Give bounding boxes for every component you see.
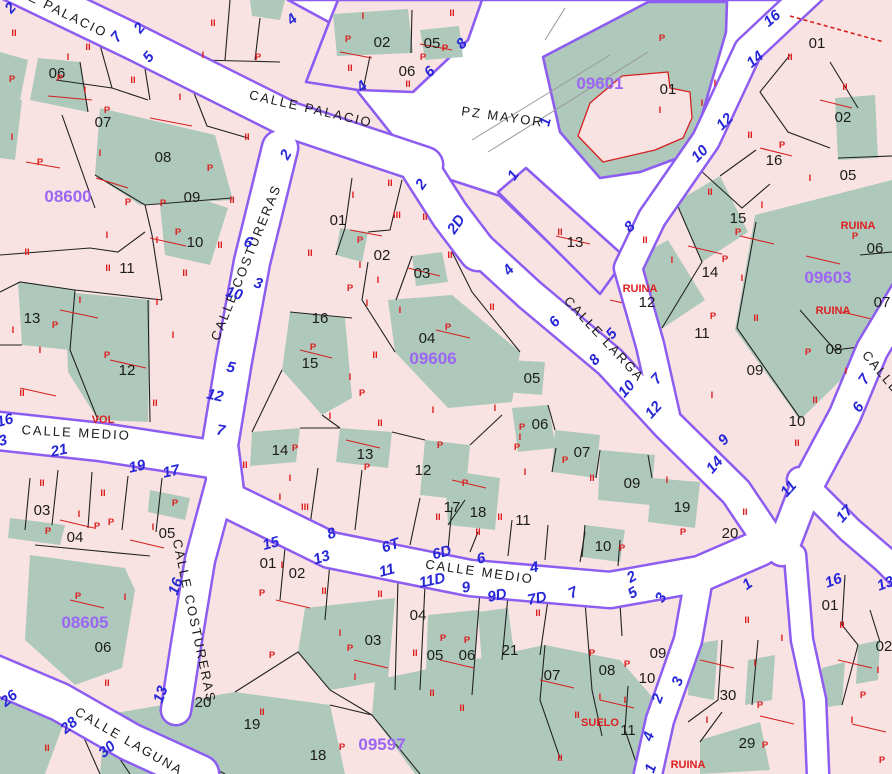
parcel-number: 05 [424, 35, 441, 52]
floors-marker: II [412, 648, 417, 659]
parcel-number: 20 [722, 525, 739, 542]
floors-marker: II [475, 527, 480, 538]
parking-marker: P [37, 157, 44, 168]
floors-marker: II [11, 28, 16, 39]
parcel-number: 04 [410, 607, 427, 624]
floors-marker: II [19, 388, 24, 399]
floors-marker: II [557, 753, 562, 764]
parking-marker: P [45, 526, 52, 537]
floors-marker: II [104, 678, 109, 689]
cadastral-map[interactable]: CALLE PALACIOCALLE PALACIOPZ MAYORCALLE … [0, 0, 892, 774]
floors-marker: I [172, 330, 175, 341]
parking-marker: P [75, 591, 82, 602]
parcel-number: 12 [119, 362, 136, 379]
parcel-number: 05 [427, 647, 444, 664]
floors-marker: I [519, 432, 522, 443]
parcel-number: 10 [187, 234, 204, 251]
parcel-number: 13 [24, 310, 41, 327]
parking-marker: P [757, 700, 764, 711]
parcel-number: 11 [620, 722, 636, 739]
floors-marker: III [393, 210, 401, 221]
parcel-number: 07 [544, 667, 561, 684]
parcel-number: 07 [574, 444, 591, 461]
parcel-number: 11 [515, 512, 531, 529]
parking-marker: P [357, 235, 364, 246]
floors-marker: II [707, 187, 712, 198]
parcel-number: 05 [159, 525, 176, 542]
parking-marker: P [519, 422, 526, 433]
floors-marker: II [642, 235, 647, 246]
floors-marker: II [229, 195, 234, 206]
floors-marker: I [179, 92, 182, 103]
block-code: 08600 [44, 187, 91, 206]
parcel-number: 30 [720, 687, 737, 704]
parking-marker: P [104, 350, 111, 361]
floors-marker: II [489, 302, 494, 313]
parcel-number: 09 [184, 189, 201, 206]
parking-marker: P [207, 163, 214, 174]
floors-marker: II [449, 8, 454, 19]
floors-marker: I [352, 190, 355, 201]
floors-marker: I [349, 372, 352, 383]
floors-marker: II [244, 132, 249, 143]
parking-marker: P [255, 52, 262, 63]
parking-marker: P [347, 643, 354, 654]
parking-marker: P [175, 227, 182, 238]
parcel-number: 06 [867, 240, 884, 257]
floors-marker: I [809, 173, 812, 184]
floors-marker: I [39, 345, 42, 356]
floors-marker: II [321, 586, 326, 597]
parcel-number: 21 [502, 642, 519, 659]
floors-marker: I [124, 592, 127, 603]
parking-marker: P [347, 283, 354, 294]
parcel-number: 06 [459, 647, 476, 664]
parking-marker: P [160, 198, 167, 209]
parcel-number: 05 [840, 167, 857, 184]
special-status-label: RUINA [623, 283, 658, 295]
floors-marker: I [701, 98, 704, 109]
special-status-label: VOL [92, 414, 115, 426]
block-code: 09603 [804, 268, 851, 287]
floors-marker: I [671, 255, 674, 266]
parcel-number: 06 [532, 416, 549, 433]
parcel-number: 16 [766, 152, 783, 169]
parking-marker: P [108, 517, 115, 528]
parcel-number: 08 [599, 662, 616, 679]
parcel-number: 04 [67, 529, 84, 546]
parcel-number: 07 [95, 114, 112, 131]
floors-marker: I [366, 298, 369, 309]
floors-marker: II [589, 473, 594, 484]
parcel-number: 09 [624, 475, 641, 492]
floors-marker: II [377, 589, 382, 600]
parking-marker: P [172, 498, 179, 509]
floors-marker: I [12, 325, 15, 336]
parking-marker: P [269, 650, 276, 661]
floors-marker: I [851, 715, 854, 726]
parking-marker: P [735, 227, 742, 238]
floors-marker: I [741, 273, 744, 284]
parcel-number: 18 [470, 504, 487, 521]
floors-marker: II [429, 688, 434, 699]
floors-marker: II [753, 313, 758, 324]
parcel-number: 18 [310, 747, 327, 764]
floors-marker: II [497, 512, 502, 523]
block-code: 09601 [576, 74, 623, 93]
parcel-number: 13 [567, 234, 584, 251]
floors-marker: II [574, 710, 579, 721]
parcel-number: 01 [260, 555, 277, 572]
floors-marker: I [354, 672, 357, 683]
floors-marker: I [156, 235, 159, 246]
parcel-number: 05 [524, 370, 541, 387]
floors-marker: II [422, 212, 427, 223]
floors-marker: II [24, 247, 29, 258]
parcel-number: 19 [244, 716, 261, 733]
parking-marker: P [659, 33, 666, 44]
parking-marker: P [57, 73, 64, 84]
parking-marker: P [680, 527, 687, 538]
parking-marker: P [359, 388, 366, 399]
floors-marker: II [39, 478, 44, 489]
floors-marker: II [535, 608, 540, 619]
parcel-number: 07 [874, 294, 891, 311]
floors-marker: I [399, 305, 402, 316]
floors-marker: I [279, 492, 282, 503]
floors-marker: II [405, 79, 410, 90]
floors-marker: II [259, 707, 264, 718]
floors-marker: I [67, 52, 70, 63]
parcel-number: 01 [660, 81, 677, 98]
floors-marker: II [85, 42, 90, 53]
parking-marker: P [852, 231, 859, 242]
special-status-label: RUINA [816, 305, 851, 317]
floors-marker: I [359, 260, 362, 271]
floors-marker: I [524, 467, 527, 478]
parking-marker: P [94, 521, 101, 532]
parking-marker: P [879, 755, 886, 766]
parcel-number: 02 [835, 109, 852, 126]
floors-marker: II [377, 418, 382, 429]
floors-marker: I [281, 560, 284, 571]
floors-marker: I [362, 11, 365, 22]
floors-marker: II [152, 398, 157, 409]
floors-marker: I [11, 132, 14, 143]
parcel-number: 17 [444, 499, 461, 516]
parcel-number: 01 [809, 35, 826, 52]
street-number: 21 [48, 441, 69, 461]
floors-marker: II [217, 240, 222, 251]
floors-marker: I [79, 295, 82, 306]
parking-marker: P [722, 254, 729, 265]
parking-marker: P [514, 442, 521, 453]
block-code: 09597 [358, 735, 405, 754]
floors-marker: II [44, 743, 49, 754]
special-status-label: RUINA [671, 759, 706, 771]
parcel-number: 29 [739, 735, 756, 752]
floors-marker: I [666, 475, 669, 486]
parking-marker: P [437, 440, 444, 451]
floors-marker: II [744, 615, 749, 626]
floors-marker: I [339, 628, 342, 639]
floors-marker: II [557, 227, 562, 238]
parcel-number: 14 [272, 442, 289, 459]
floors-marker: II [812, 395, 817, 406]
floors-marker: II [447, 250, 452, 261]
floors-marker: II [387, 178, 392, 189]
special-status-label: SUELO [581, 717, 619, 729]
floors-marker: I [202, 50, 205, 61]
green-parcel[interactable] [745, 655, 775, 705]
parking-marker: P [310, 342, 317, 353]
parking-marker: P [624, 659, 631, 670]
floors-marker: I [152, 522, 155, 533]
floors-marker: I [714, 78, 717, 89]
parcel-number: 12 [415, 462, 432, 479]
parking-marker: P [104, 105, 111, 116]
parcel-number: 02 [876, 638, 892, 655]
parking-marker: P [125, 197, 132, 208]
floors-marker: I [78, 509, 81, 520]
parcel-number: 03 [34, 502, 51, 519]
parking-marker: P [259, 588, 266, 599]
parcel-number: 12 [639, 294, 656, 311]
floors-marker: III [301, 502, 309, 513]
parking-marker: P [9, 74, 16, 85]
parking-marker: P [440, 633, 447, 644]
parcel-number: 15 [730, 210, 747, 227]
floors-marker: I [624, 695, 627, 706]
floors-marker: I [761, 200, 764, 211]
parking-marker: P [860, 690, 867, 701]
parcel-number: 04 [419, 330, 436, 347]
parking-marker: P [805, 347, 812, 358]
parking-marker: P [292, 443, 299, 454]
parking-marker: P [364, 462, 371, 473]
parcel-number: 03 [414, 265, 431, 282]
floors-marker: II [747, 130, 752, 141]
floors-marker: I [377, 275, 380, 286]
floors-marker: II [347, 63, 352, 74]
floors-marker: II [794, 438, 799, 449]
parcel-number: 10 [789, 413, 806, 430]
parking-marker: P [462, 478, 469, 489]
floors-marker: I [599, 692, 602, 703]
floors-marker: II [182, 268, 187, 279]
floors-marker: I [659, 105, 662, 116]
parcel-number: 15 [302, 355, 319, 372]
parcel-number: 09 [650, 645, 667, 662]
map-canvas[interactable]: CALLE PALACIOCALLE PALACIOPZ MAYORCALLE … [0, 0, 892, 774]
floors-marker: II [742, 507, 747, 518]
parcel-number: 06 [95, 639, 112, 656]
parking-marker: P [464, 635, 471, 646]
floors-marker: II [842, 82, 847, 93]
parcel-number: 19 [674, 499, 691, 516]
parcel-number: 10 [639, 670, 656, 687]
floors-marker: I [329, 411, 332, 422]
floors-marker: I [845, 366, 848, 377]
parcel-number: 01 [330, 212, 347, 229]
floors-marker: I [706, 715, 709, 726]
parcel-number: 09 [747, 362, 764, 379]
floors-marker: II [435, 512, 440, 523]
floors-marker: I [156, 297, 159, 308]
parking-marker: P [420, 52, 427, 63]
parcel-number: 11 [694, 325, 710, 342]
floors-marker: I [494, 403, 497, 414]
parking-marker: P [779, 140, 786, 151]
parcel-number: 20 [195, 694, 212, 711]
parcel-number: 02 [289, 565, 306, 582]
floors-marker: II [307, 248, 312, 259]
floors-marker: I [754, 658, 757, 669]
floors-marker: I [84, 85, 87, 96]
floors-marker: I [106, 230, 109, 241]
floors-marker: II [105, 263, 110, 274]
floors-marker: II [839, 620, 844, 631]
parcel-number: 06 [399, 63, 416, 80]
floors-marker: I [711, 390, 714, 401]
parcel-number: 02 [374, 247, 391, 264]
parking-marker: P [619, 543, 626, 554]
floors-marker: II [242, 460, 247, 471]
parking-marker: P [562, 455, 569, 466]
block-code: 08605 [61, 613, 108, 632]
parking-marker: P [339, 742, 346, 753]
block-code: 09606 [409, 349, 456, 368]
floors-marker: II [130, 75, 135, 86]
parking-marker: P [762, 740, 769, 751]
parcel-number: 11 [119, 260, 135, 277]
floors-marker: I [289, 473, 292, 484]
floors-marker: I [432, 405, 435, 416]
floors-marker: II [100, 488, 105, 499]
parcel-number: 03 [365, 632, 382, 649]
floors-marker: II [372, 350, 377, 361]
parcel-number: 08 [155, 149, 172, 166]
parcel-number: 13 [357, 446, 374, 463]
parking-marker: P [589, 648, 596, 659]
parking-marker: P [710, 311, 717, 322]
parking-marker: P [445, 322, 452, 333]
parcel-number: 14 [702, 264, 719, 281]
parcel-number: 08 [826, 341, 843, 358]
parcel-number: 01 [822, 597, 839, 614]
floors-marker: I [99, 148, 102, 159]
floors-marker: II [787, 52, 792, 63]
floors-marker: II [459, 703, 464, 714]
floors-marker: I [877, 665, 880, 676]
parcel-number: 16 [312, 310, 329, 327]
parking-marker: P [52, 320, 59, 331]
floors-marker: I [781, 633, 784, 644]
parcel-number: 10 [595, 538, 612, 555]
parcel-number: 02 [374, 34, 391, 51]
parking-marker: P [345, 34, 352, 45]
floors-marker: II [210, 18, 215, 29]
parking-marker: P [442, 43, 449, 54]
